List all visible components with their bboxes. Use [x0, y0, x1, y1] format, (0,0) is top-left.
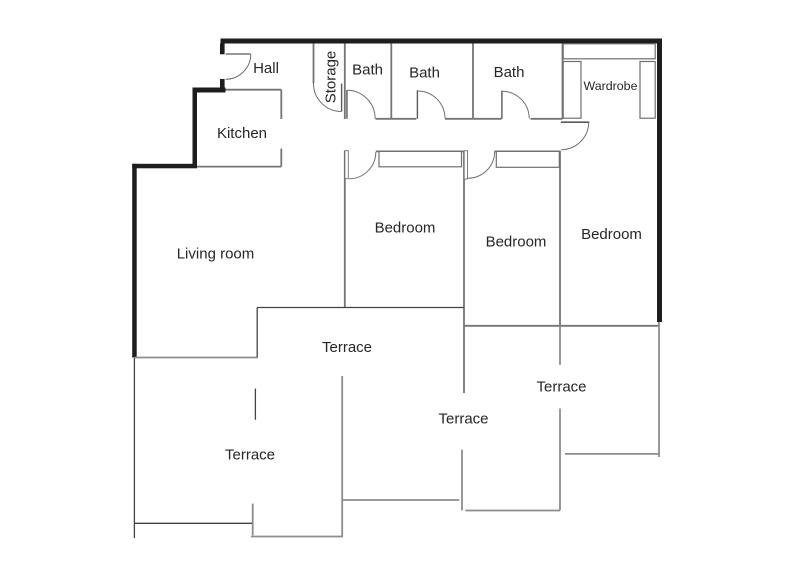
svg-text:Terrace: Terrace [438, 411, 488, 428]
svg-text:Wardrobe: Wardrobe [584, 79, 638, 93]
svg-text:Kitchen: Kitchen [217, 125, 267, 142]
svg-text:Bedroom: Bedroom [375, 220, 436, 237]
svg-text:Bath: Bath [352, 61, 383, 78]
svg-text:Terrace: Terrace [322, 339, 372, 356]
svg-text:Terrace: Terrace [536, 379, 586, 396]
svg-text:Living room: Living room [177, 246, 255, 263]
svg-text:Bath: Bath [409, 65, 440, 82]
svg-text:Bath: Bath [494, 64, 525, 81]
svg-text:Terrace: Terrace [225, 447, 275, 464]
svg-text:Bedroom: Bedroom [486, 234, 547, 251]
svg-text:Bedroom: Bedroom [581, 226, 642, 243]
svg-text:Hall: Hall [253, 60, 279, 77]
svg-text:Storage: Storage [323, 51, 340, 104]
